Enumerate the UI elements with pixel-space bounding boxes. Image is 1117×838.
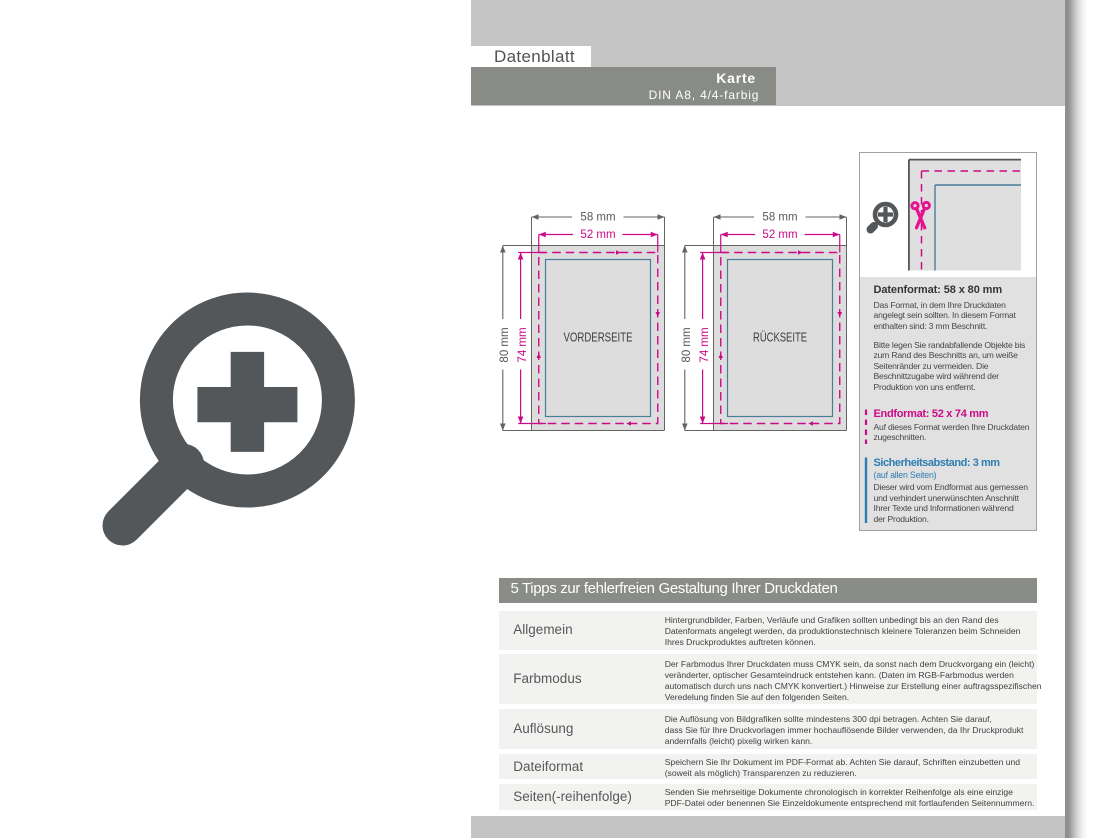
svg-text:58 mm: 58 mm — [580, 212, 615, 224]
svg-text:74 mm: 74 mm — [517, 327, 529, 362]
svg-text:52 mm: 52 mm — [762, 229, 797, 241]
svg-text:52 mm: 52 mm — [580, 229, 615, 241]
svg-text:74 mm: 74 mm — [699, 327, 711, 362]
svg-text:58 mm: 58 mm — [762, 212, 797, 224]
svg-text:80 mm: 80 mm — [681, 327, 693, 362]
svg-text:80 mm: 80 mm — [499, 327, 511, 362]
svg-text:VORDERSEITE: VORDERSEITE — [564, 331, 633, 345]
svg-text:RÜCKSEITE: RÜCKSEITE — [753, 331, 807, 345]
